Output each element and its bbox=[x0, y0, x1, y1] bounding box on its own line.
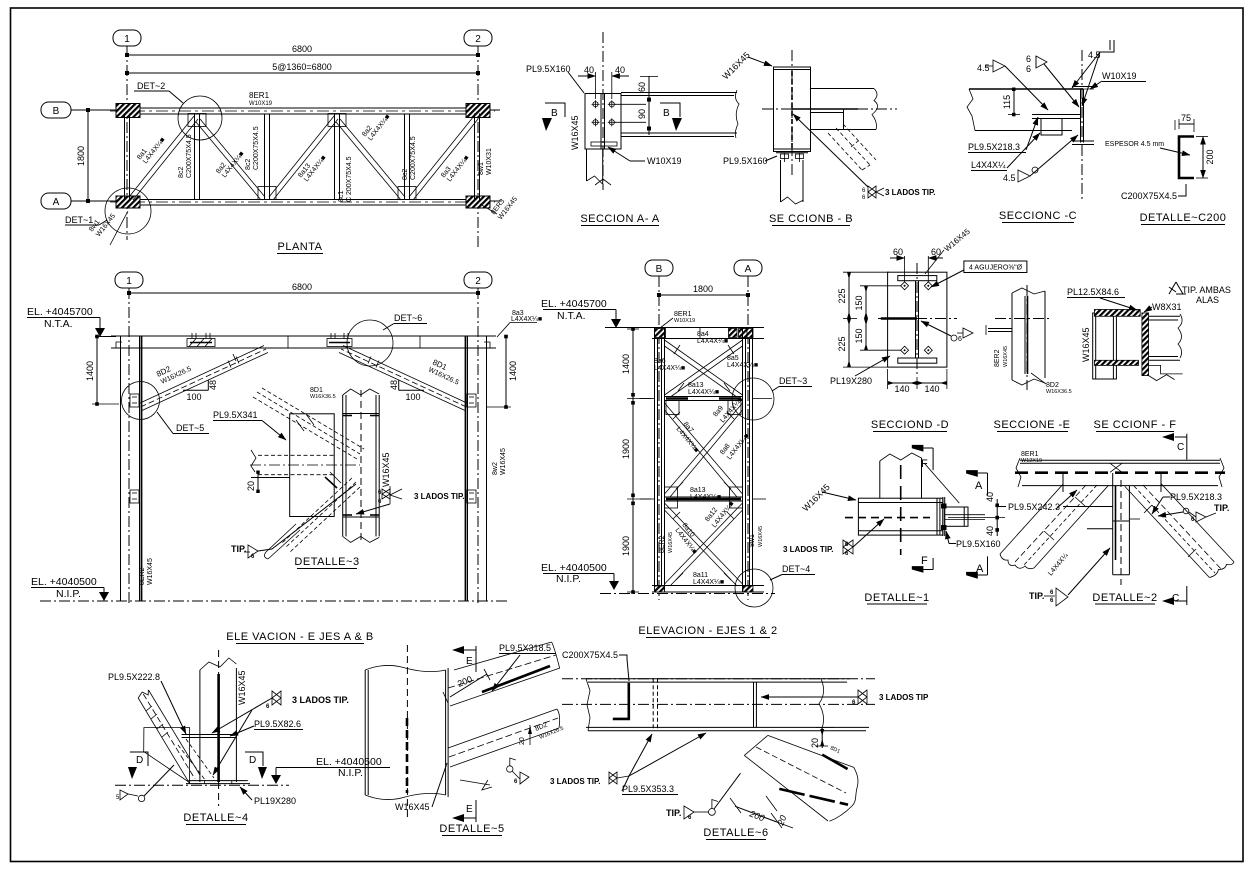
svg-text:40: 40 bbox=[615, 65, 625, 75]
svg-text:PL19X280: PL19X280 bbox=[254, 796, 296, 806]
svg-text:W16X45: W16X45 bbox=[381, 452, 391, 487]
svg-text:PL9.5X341: PL9.5X341 bbox=[213, 410, 258, 420]
svg-text:PL19X280: PL19X280 bbox=[830, 376, 872, 386]
svg-text:DET~5: DET~5 bbox=[176, 423, 204, 433]
svg-text:D: D bbox=[136, 755, 143, 766]
svg-text:B: B bbox=[656, 264, 663, 275]
svg-text:W8X31: W8X31 bbox=[1152, 302, 1182, 312]
svg-text:3 LADOS TIP: 3 LADOS TIP bbox=[879, 693, 929, 702]
svg-text:W16X45: W16X45 bbox=[1081, 327, 1091, 362]
svg-text:EL. +4045700: EL. +4045700 bbox=[541, 298, 607, 310]
svg-text:DETALLE~3: DETALLE~3 bbox=[294, 556, 359, 568]
svg-text:115: 115 bbox=[1002, 95, 1012, 109]
svg-text:225: 225 bbox=[837, 336, 847, 351]
svg-text:ELE VACION - E JES A & B: ELE VACION - E JES A & B bbox=[226, 631, 374, 643]
svg-text:W16X36.5: W16X36.5 bbox=[1046, 389, 1072, 395]
svg-text:L4X4X¼■: L4X4X¼■ bbox=[693, 579, 724, 586]
svg-text:8D1: 8D1 bbox=[310, 387, 323, 394]
svg-text:SECCIONE -E: SECCIONE -E bbox=[993, 419, 1070, 431]
svg-text:150: 150 bbox=[854, 328, 864, 343]
svg-text:L4X4X¼■: L4X4X¼■ bbox=[727, 362, 758, 369]
svg-text:40: 40 bbox=[584, 65, 594, 75]
svg-text:C 200X75X4.5: C 200X75X4.5 bbox=[346, 156, 353, 202]
svg-text:EL. +4040500: EL. +4040500 bbox=[31, 576, 97, 588]
svg-text:N.I.P.: N.I.P. bbox=[556, 573, 581, 585]
svg-text:DETALLE~4: DETALLE~4 bbox=[183, 812, 248, 824]
svg-text:8D2: 8D2 bbox=[1046, 382, 1059, 389]
svg-text:TIP.: TIP. bbox=[1029, 591, 1044, 601]
svg-text:W16X36.5: W16X36.5 bbox=[310, 394, 336, 400]
svg-text:TIP.: TIP. bbox=[1214, 503, 1229, 513]
svg-text:8w2: 8w2 bbox=[492, 462, 499, 475]
svg-text:6800: 6800 bbox=[292, 282, 312, 292]
svg-text:225: 225 bbox=[837, 288, 847, 303]
svg-text:8ER2: 8ER2 bbox=[139, 567, 146, 585]
svg-text:100: 100 bbox=[186, 392, 201, 402]
svg-text:A: A bbox=[745, 264, 752, 275]
svg-text:3 LADOS TIP.: 3 LADOS TIP. bbox=[414, 492, 465, 501]
svg-text:8c2: 8c2 bbox=[402, 169, 409, 180]
svg-text:PL9.5X218.3: PL9.5X218.3 bbox=[1170, 492, 1222, 502]
svg-text:60: 60 bbox=[637, 82, 647, 92]
svg-text:TIP.: TIP. bbox=[666, 808, 681, 818]
svg-text:TIP.: TIP. bbox=[231, 544, 246, 554]
svg-text:A: A bbox=[975, 480, 983, 492]
svg-text:40: 40 bbox=[985, 492, 995, 502]
svg-text:SECCIONC -C: SECCIONC -C bbox=[999, 210, 1077, 222]
svg-text:8ER1: 8ER1 bbox=[674, 311, 692, 318]
svg-text:D: D bbox=[249, 755, 256, 766]
svg-text:DET~2: DET~2 bbox=[137, 81, 165, 91]
svg-text:3 LADOS TIP.: 3 LADOS TIP. bbox=[292, 695, 349, 705]
svg-text:W10X19: W10X19 bbox=[1102, 71, 1137, 81]
svg-text:SECCION A- A: SECCION A- A bbox=[580, 213, 660, 225]
svg-text:W16X45: W16X45 bbox=[570, 115, 580, 150]
svg-text:SECCIOND -D: SECCIOND -D bbox=[871, 419, 949, 431]
svg-text:C200X75X4.5: C200X75X4.5 bbox=[253, 126, 260, 170]
svg-text:3 LADOS TIP.: 3 LADOS TIP. bbox=[550, 777, 601, 786]
svg-text:B: B bbox=[551, 108, 558, 119]
svg-text:L4X4X¼■: L4X4X¼■ bbox=[511, 316, 542, 323]
svg-text:8a11: 8a11 bbox=[693, 572, 708, 579]
svg-text:8w1: 8w1 bbox=[478, 162, 485, 175]
svg-text:DET~4: DET~4 bbox=[782, 564, 810, 574]
svg-text:PL9.5X218.3: PL9.5X218.3 bbox=[968, 142, 1020, 152]
svg-text:6800: 6800 bbox=[292, 44, 312, 54]
svg-text:6: 6 bbox=[1026, 64, 1031, 74]
svg-text:75: 75 bbox=[1181, 113, 1191, 123]
svg-text:EL. +4045700: EL. +4045700 bbox=[27, 306, 93, 318]
svg-text:DETALLE~5: DETALLE~5 bbox=[439, 823, 504, 835]
svg-text:C: C bbox=[1172, 593, 1179, 604]
svg-text:E: E bbox=[466, 804, 473, 815]
svg-text:140: 140 bbox=[924, 384, 939, 394]
svg-text:W16X45: W16X45 bbox=[1003, 346, 1009, 367]
svg-text:L4X4X¼■: L4X4X¼■ bbox=[654, 365, 685, 372]
svg-text:W10X19: W10X19 bbox=[674, 318, 695, 324]
svg-text:100: 100 bbox=[405, 392, 420, 402]
svg-text:PLANTA: PLANTA bbox=[278, 241, 323, 253]
svg-text:A: A bbox=[976, 563, 984, 575]
svg-text:PL9.5X82.6: PL9.5X82.6 bbox=[254, 719, 301, 729]
svg-text:8w1: 8w1 bbox=[749, 534, 756, 547]
svg-text:8c1: 8c1 bbox=[338, 191, 345, 202]
svg-text:1400: 1400 bbox=[621, 354, 631, 374]
svg-text:1400: 1400 bbox=[85, 361, 95, 381]
svg-text:8a6: 8a6 bbox=[654, 358, 666, 365]
svg-text:140: 140 bbox=[894, 384, 909, 394]
svg-text:20: 20 bbox=[246, 481, 256, 491]
svg-text:150: 150 bbox=[854, 295, 864, 310]
svg-text:8ER1: 8ER1 bbox=[1021, 451, 1039, 458]
svg-text:PL9.5X160: PL9.5X160 bbox=[723, 156, 768, 166]
svg-text:B: B bbox=[663, 108, 670, 119]
svg-text:DET~6: DET~6 bbox=[394, 313, 422, 323]
svg-text:SE CCIONB - B: SE CCIONB - B bbox=[769, 213, 853, 225]
svg-text:PL9.5X318.5: PL9.5X318.5 bbox=[499, 643, 551, 653]
svg-text:B: B bbox=[53, 106, 60, 117]
svg-text:4.5: 4.5 bbox=[1003, 173, 1016, 183]
svg-text:W10X31: W10X31 bbox=[486, 148, 493, 175]
svg-text:L4X4X¼■: L4X4X¼■ bbox=[688, 389, 719, 396]
svg-text:3 LADOS TIP.: 3 LADOS TIP. bbox=[885, 188, 936, 197]
svg-text:C: C bbox=[1177, 442, 1184, 453]
svg-text:ESPESOR 4.5 mm: ESPESOR 4.5 mm bbox=[1105, 141, 1164, 148]
svg-text:200: 200 bbox=[1205, 149, 1215, 164]
svg-text:PL9.5X160: PL9.5X160 bbox=[956, 539, 1001, 549]
svg-text:2: 2 bbox=[475, 276, 481, 287]
svg-text:DETALLE~6: DETALLE~6 bbox=[703, 827, 768, 839]
svg-text:1800: 1800 bbox=[693, 284, 713, 294]
svg-text:60: 60 bbox=[893, 247, 903, 257]
svg-text:8c2: 8c2 bbox=[245, 159, 252, 170]
svg-text:W10X19: W10X19 bbox=[647, 156, 682, 166]
svg-text:6: 6 bbox=[1026, 54, 1031, 64]
svg-text:W16X45: W16X45 bbox=[237, 670, 247, 705]
svg-text:4.5: 4.5 bbox=[977, 63, 990, 73]
svg-text:L4X4X¼: L4X4X¼ bbox=[971, 160, 1006, 170]
svg-text:W12X19: W12X19 bbox=[1021, 458, 1042, 464]
svg-text:W10X19: W10X19 bbox=[249, 101, 273, 107]
svg-text:PL12.5X84.6: PL12.5X84.6 bbox=[1067, 287, 1119, 297]
svg-text:8ER2: 8ER2 bbox=[994, 349, 1001, 367]
svg-text:C200X75X4.5: C200X75X4.5 bbox=[410, 136, 417, 180]
svg-text:W16X45: W16X45 bbox=[758, 526, 764, 547]
svg-text:2: 2 bbox=[475, 34, 481, 45]
svg-text:1: 1 bbox=[124, 34, 130, 45]
svg-text:20: 20 bbox=[519, 737, 526, 745]
svg-text:1400: 1400 bbox=[508, 361, 518, 381]
svg-text:1800: 1800 bbox=[76, 146, 86, 166]
svg-text:6: 6 bbox=[958, 336, 962, 343]
svg-text:5@1360=6800: 5@1360=6800 bbox=[272, 62, 331, 72]
svg-text:DETALLE~C200: DETALLE~C200 bbox=[1140, 212, 1227, 224]
svg-text:DET~3: DET~3 bbox=[779, 376, 807, 386]
svg-text:C200X75X4.5: C200X75X4.5 bbox=[562, 650, 618, 660]
svg-text:PL9.5X160: PL9.5X160 bbox=[526, 64, 571, 74]
svg-text:90: 90 bbox=[637, 109, 647, 119]
svg-text:20: 20 bbox=[810, 738, 820, 748]
svg-text:8c2: 8c2 bbox=[178, 167, 185, 178]
svg-text:40: 40 bbox=[985, 526, 995, 536]
svg-text:8a5: 8a5 bbox=[727, 355, 739, 362]
svg-text:1900: 1900 bbox=[621, 536, 631, 556]
svg-text:W16X45: W16X45 bbox=[668, 532, 674, 553]
svg-text:N.I.P.: N.I.P. bbox=[338, 767, 363, 779]
svg-text:1: 1 bbox=[126, 276, 132, 287]
svg-text:8a13: 8a13 bbox=[688, 382, 704, 389]
svg-text:PL9.5X222.8: PL9.5X222.8 bbox=[108, 672, 160, 682]
svg-text:W16X45: W16X45 bbox=[500, 448, 507, 475]
svg-text:DET~1: DET~1 bbox=[65, 215, 93, 225]
svg-text:PL9.5X353.3: PL9.5X353.3 bbox=[622, 784, 674, 794]
svg-text:TIP. AMBAS: TIP. AMBAS bbox=[1182, 285, 1231, 295]
svg-text:DETALLE~2: DETALLE~2 bbox=[1092, 592, 1157, 604]
svg-text:ALAS: ALAS bbox=[1196, 295, 1219, 305]
svg-text:8a13: 8a13 bbox=[690, 487, 706, 494]
svg-text:W16X45: W16X45 bbox=[147, 558, 154, 585]
svg-text:8ER1: 8ER1 bbox=[249, 91, 270, 100]
svg-text:L4X4X¼■: L4X4X¼■ bbox=[697, 338, 728, 345]
svg-text:W16X45: W16X45 bbox=[395, 802, 430, 812]
svg-text:1900: 1900 bbox=[621, 439, 631, 459]
svg-text:ELEVACION - EJES 1 & 2: ELEVACION - EJES 1 & 2 bbox=[638, 625, 777, 637]
svg-text:3 LADOS TIP.: 3 LADOS TIP. bbox=[783, 545, 834, 554]
svg-text:DETALLE~1: DETALLE~1 bbox=[864, 592, 929, 604]
svg-text:E: E bbox=[466, 656, 473, 667]
svg-text:8a4: 8a4 bbox=[697, 331, 709, 338]
svg-text:48: 48 bbox=[389, 380, 399, 390]
svg-text:48: 48 bbox=[208, 380, 218, 390]
svg-text:C200X75X4.5: C200X75X4.5 bbox=[1121, 191, 1177, 201]
svg-text:8ER2: 8ER2 bbox=[659, 535, 666, 553]
svg-text:N.I.P.: N.I.P. bbox=[56, 588, 81, 600]
svg-text:N.T.A.: N.T.A. bbox=[557, 310, 586, 322]
svg-text:PL9.5X242.3: PL9.5X242.3 bbox=[1008, 502, 1060, 512]
svg-text:SE CCIONF - F: SE CCIONF - F bbox=[1094, 419, 1177, 431]
svg-text:C200X75X4.5: C200X75X4.5 bbox=[186, 134, 193, 178]
svg-text:L4X4X¼■: L4X4X¼■ bbox=[690, 494, 721, 501]
svg-text:A: A bbox=[53, 197, 60, 208]
svg-text:F: F bbox=[921, 555, 928, 567]
svg-text:4 AGUJERO⅜"Ø: 4 AGUJERO⅜"Ø bbox=[969, 265, 1023, 272]
svg-text:N.T.A.: N.T.A. bbox=[44, 318, 73, 330]
